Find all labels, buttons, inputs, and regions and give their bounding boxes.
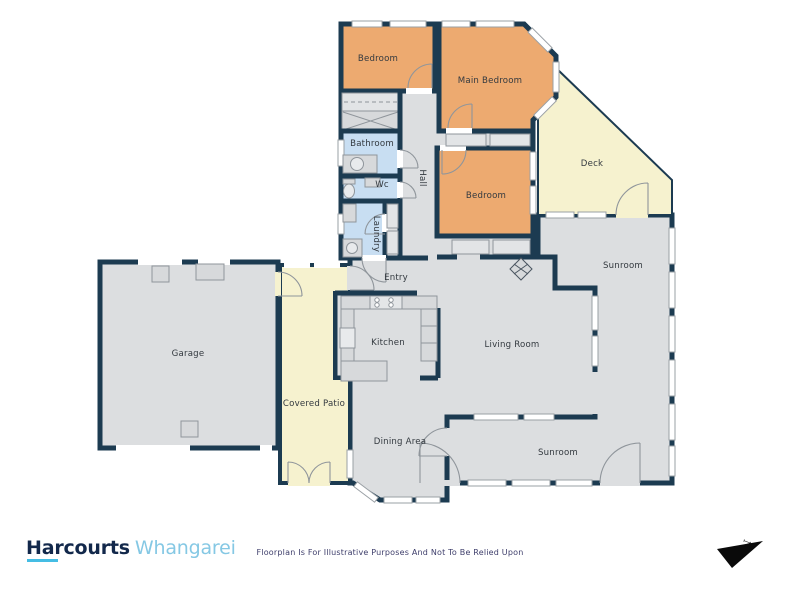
label-kitchen: Kitchen (371, 338, 405, 348)
label-entry: Entry (384, 273, 408, 283)
wardrobe-strip (342, 93, 399, 111)
toilet-cistern (343, 179, 355, 184)
label-bedroom-2: Bedroom (466, 191, 506, 201)
closet (452, 240, 489, 254)
stove (370, 296, 402, 309)
label-garage: Garage (172, 349, 205, 359)
north-arrow-pointer (717, 541, 763, 568)
label-sunroom-top: Sunroom (603, 261, 643, 271)
label-bedroom-1: Bedroom (358, 54, 398, 64)
burner (389, 303, 393, 307)
closet (446, 134, 486, 146)
logo-underline (27, 559, 58, 562)
garage-unit (196, 264, 224, 280)
label-dining-area: Dining Area (374, 437, 426, 447)
label-main-bedroom: Main Bedroom (458, 76, 523, 86)
label-living-room: Living Room (485, 340, 540, 350)
floorplan-drawing: Bedroom Main Bedroom Bathroom Wc Laundry… (0, 0, 799, 600)
closet (490, 134, 530, 146)
label-bathroom: Bathroom (350, 139, 394, 149)
label-wc: Wc (375, 180, 389, 190)
kitchen-island (341, 361, 387, 381)
garage-unit (181, 421, 198, 437)
kitchen-pantry (421, 309, 437, 361)
label-deck: Deck (581, 159, 603, 169)
label-covered-patio: Covered Patio (283, 399, 345, 409)
north-arrow: N (703, 530, 778, 585)
label-hall: Hall (417, 169, 427, 186)
toilet-bowl (344, 184, 355, 198)
label-laundry: Laundry (371, 216, 381, 252)
label-sunroom-bottom: Sunroom (538, 448, 578, 458)
burner (389, 298, 393, 302)
burner (375, 298, 379, 302)
kitchen-sink (340, 328, 355, 348)
closet (493, 240, 530, 254)
closet (387, 204, 398, 228)
garage-unit (152, 266, 169, 282)
basin (351, 158, 364, 171)
disclaimer-text: Floorplan Is For Illustrative Purposes A… (0, 548, 780, 557)
burner (375, 303, 379, 307)
laundry-tub (343, 204, 356, 222)
closet (387, 231, 398, 254)
floorplan-page: Bedroom Main Bedroom Bathroom Wc Laundry… (0, 0, 799, 600)
